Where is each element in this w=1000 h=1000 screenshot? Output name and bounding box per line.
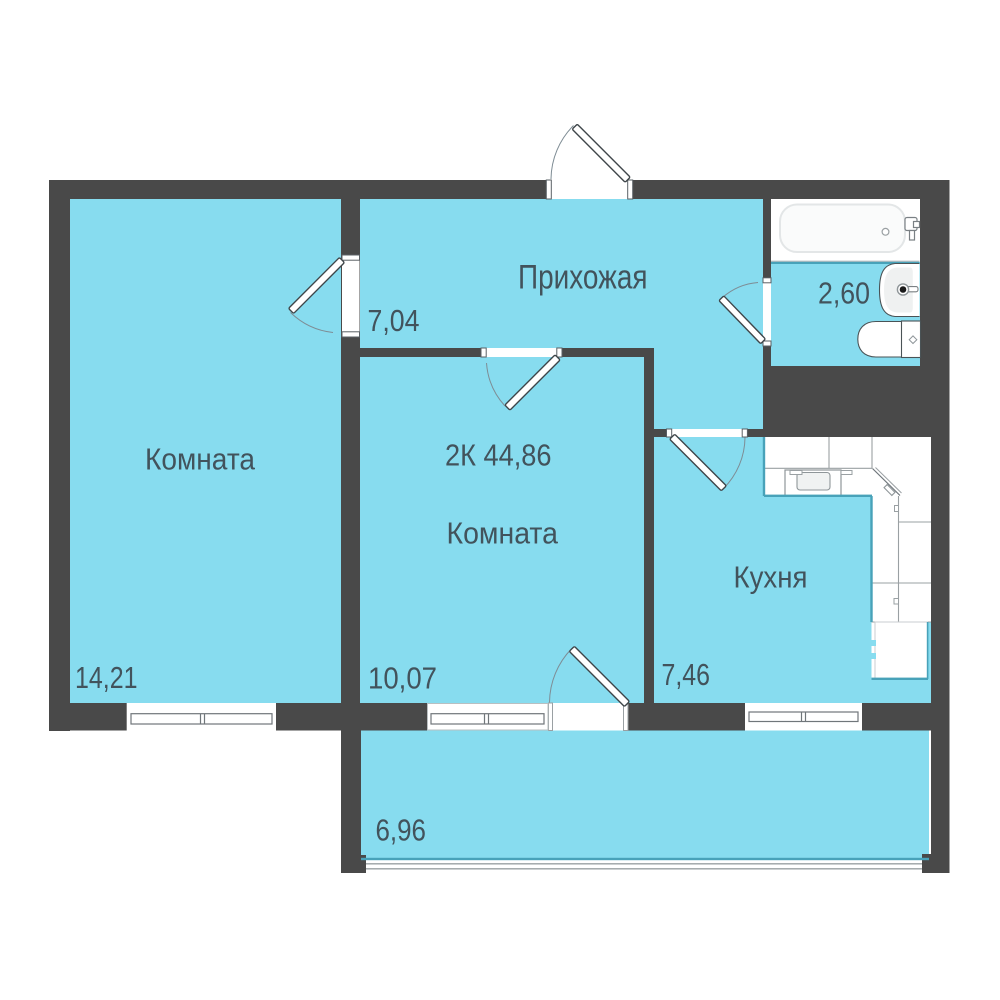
- svg-text:2К 44,86: 2К 44,86: [445, 438, 552, 472]
- svg-text:14,21: 14,21: [75, 660, 138, 695]
- svg-text:Кухня: Кухня: [734, 561, 808, 595]
- svg-text:2,60: 2,60: [818, 277, 870, 311]
- svg-text:Прихожая: Прихожая: [518, 259, 648, 297]
- svg-text:7,46: 7,46: [662, 658, 711, 692]
- svg-text:Комната: Комната: [145, 443, 255, 477]
- svg-text:6,96: 6,96: [376, 814, 427, 848]
- svg-text:10,07: 10,07: [368, 662, 437, 696]
- svg-text:7,04: 7,04: [368, 304, 420, 338]
- svg-text:Комната: Комната: [447, 516, 559, 550]
